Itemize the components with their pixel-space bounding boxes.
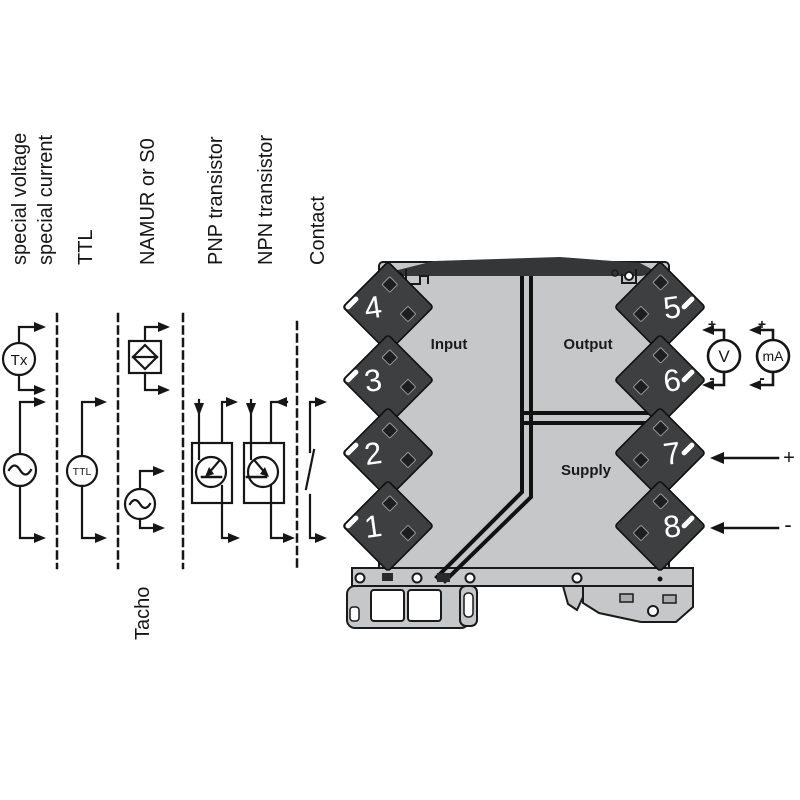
supply-plus-label: + (783, 447, 795, 469)
voltage-source-symbol (4, 397, 46, 543)
arrow-right-icon (315, 533, 327, 543)
arrow-right-icon (34, 385, 46, 395)
switch-blade-icon (306, 450, 314, 489)
arrow-right-icon (158, 322, 170, 332)
supply-minus-label: - (784, 512, 791, 537)
supply-minus-wire (710, 522, 778, 534)
arrow-left-icon (710, 522, 724, 534)
separator-dashed-lines (57, 314, 297, 568)
arrow-down-icon (194, 403, 204, 416)
ammeter-minus: - (759, 370, 764, 387)
arrow-right-icon (283, 533, 295, 543)
input-region-label: Input (431, 336, 468, 353)
tx-label: Tx (11, 352, 28, 369)
arrow-right-icon (228, 533, 240, 543)
arrow-right-icon (34, 397, 46, 407)
arrow-left-icon (710, 452, 724, 464)
arrow-right-icon (226, 397, 238, 407)
voltmeter-minus: - (709, 370, 714, 387)
arrow-right-icon (34, 322, 46, 332)
din-foot-right (563, 586, 693, 622)
din-latch-tab (460, 586, 477, 626)
arrow-right-icon (153, 466, 165, 476)
module-bottom-strip (352, 568, 693, 586)
output-region-label: Output (563, 336, 612, 353)
arrow-right-icon (34, 533, 46, 543)
voltmeter-plus: + (708, 316, 716, 332)
signal-module: Input Output Supply 4 3 (343, 257, 706, 628)
contact-symbol (306, 397, 327, 543)
supply-region-label: Supply (561, 462, 612, 479)
arrow-right-icon (95, 397, 107, 407)
ttl-circle-label: TTL (73, 466, 92, 478)
namur-sensor-symbol (129, 322, 170, 395)
arrow-right-icon (95, 533, 107, 543)
voltmeter-label: V (718, 347, 730, 366)
arrow-right-icon (158, 385, 170, 395)
arrow-left-icon (275, 397, 287, 407)
arrow-down-icon (246, 403, 256, 416)
wiring-diagram: special voltage special current TTL NAMU… (0, 0, 800, 800)
supply-plus-wire (710, 452, 778, 464)
tacho-symbol (125, 466, 165, 533)
arrow-right-icon (153, 523, 165, 533)
pnp-transistor-symbol (192, 397, 240, 543)
ammeter-plus: + (758, 316, 766, 332)
din-foot-left (347, 586, 469, 628)
arrow-right-icon (315, 397, 327, 407)
diagram-artwork: Tx TTL (0, 0, 800, 800)
ammeter-label: mA (763, 348, 785, 364)
npn-transistor-symbol (244, 397, 295, 543)
